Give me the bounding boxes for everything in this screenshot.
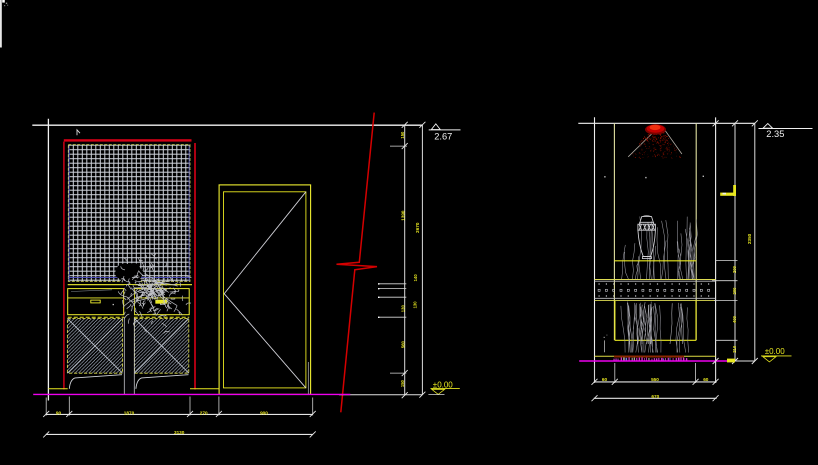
svg-text:2.67: 2.67: [434, 131, 452, 141]
svg-text:400: 400: [732, 315, 737, 323]
svg-text:1390: 1390: [401, 210, 406, 221]
svg-text:±0.00: ±0.00: [765, 347, 786, 356]
svg-text:130: 130: [401, 305, 406, 313]
svg-text:2350: 2350: [747, 233, 752, 244]
svg-text:60: 60: [602, 377, 608, 382]
svg-text:200: 200: [732, 287, 737, 295]
svg-text:2670: 2670: [415, 222, 420, 233]
svg-text:210: 210: [732, 345, 737, 353]
svg-text:3130: 3130: [174, 430, 185, 435]
svg-text:2.35: 2.35: [766, 129, 784, 139]
svg-text:560: 560: [400, 340, 405, 348]
svg-text:270: 270: [200, 411, 208, 416]
svg-text:±0.00: ±0.00: [433, 380, 454, 389]
svg-text:150: 150: [400, 379, 405, 387]
svg-text:670: 670: [651, 394, 659, 399]
svg-text:900: 900: [260, 411, 268, 416]
svg-text:60: 60: [703, 377, 709, 382]
svg-text:90: 90: [56, 411, 62, 416]
svg-text:130: 130: [413, 301, 418, 309]
svg-text:1870: 1870: [124, 411, 135, 416]
svg-text:150: 150: [400, 131, 405, 139]
svg-text:550: 550: [651, 377, 659, 382]
svg-text:200: 200: [732, 265, 737, 273]
svg-text:140: 140: [413, 274, 418, 282]
